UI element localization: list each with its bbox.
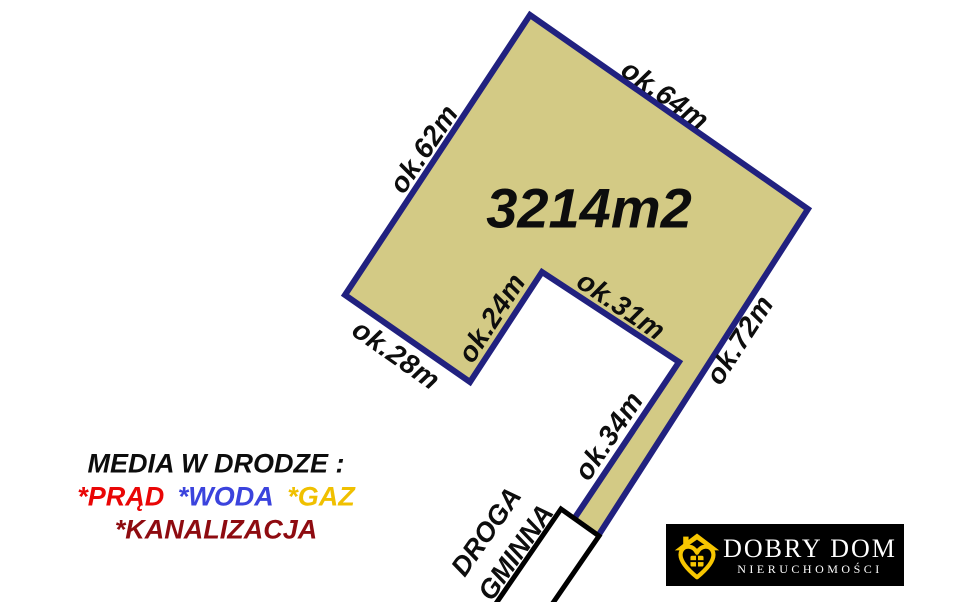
utility-prad: *PRĄD bbox=[77, 482, 164, 512]
logo-subtitle: NIERUCHOMOŚCI bbox=[737, 563, 883, 576]
utility-woda: *WODA bbox=[178, 482, 274, 512]
media-utilities-row: *PRĄD *WODA *GAZ bbox=[74, 481, 358, 514]
area-label: 3214m2 bbox=[486, 176, 692, 241]
house-heart-icon bbox=[674, 530, 720, 580]
utility-gaz: *GAZ bbox=[287, 482, 355, 512]
agency-logo: DOBRY DOM NIERUCHOMOŚCI bbox=[666, 524, 904, 586]
media-title: MEDIA W DRODZE : bbox=[74, 448, 358, 481]
logo-text: DOBRY DOM NIERUCHOMOŚCI bbox=[720, 535, 900, 576]
plot-map: 3214m2 ok.62m ok.64m ok.72m ok.28m ok.24… bbox=[0, 0, 960, 602]
logo-company-name: DOBRY DOM bbox=[723, 535, 897, 562]
utility-kanalizacja: *KANALIZACJA bbox=[115, 515, 318, 545]
media-note: MEDIA W DRODZE : *PRĄD *WODA *GAZ *KANAL… bbox=[74, 448, 358, 547]
